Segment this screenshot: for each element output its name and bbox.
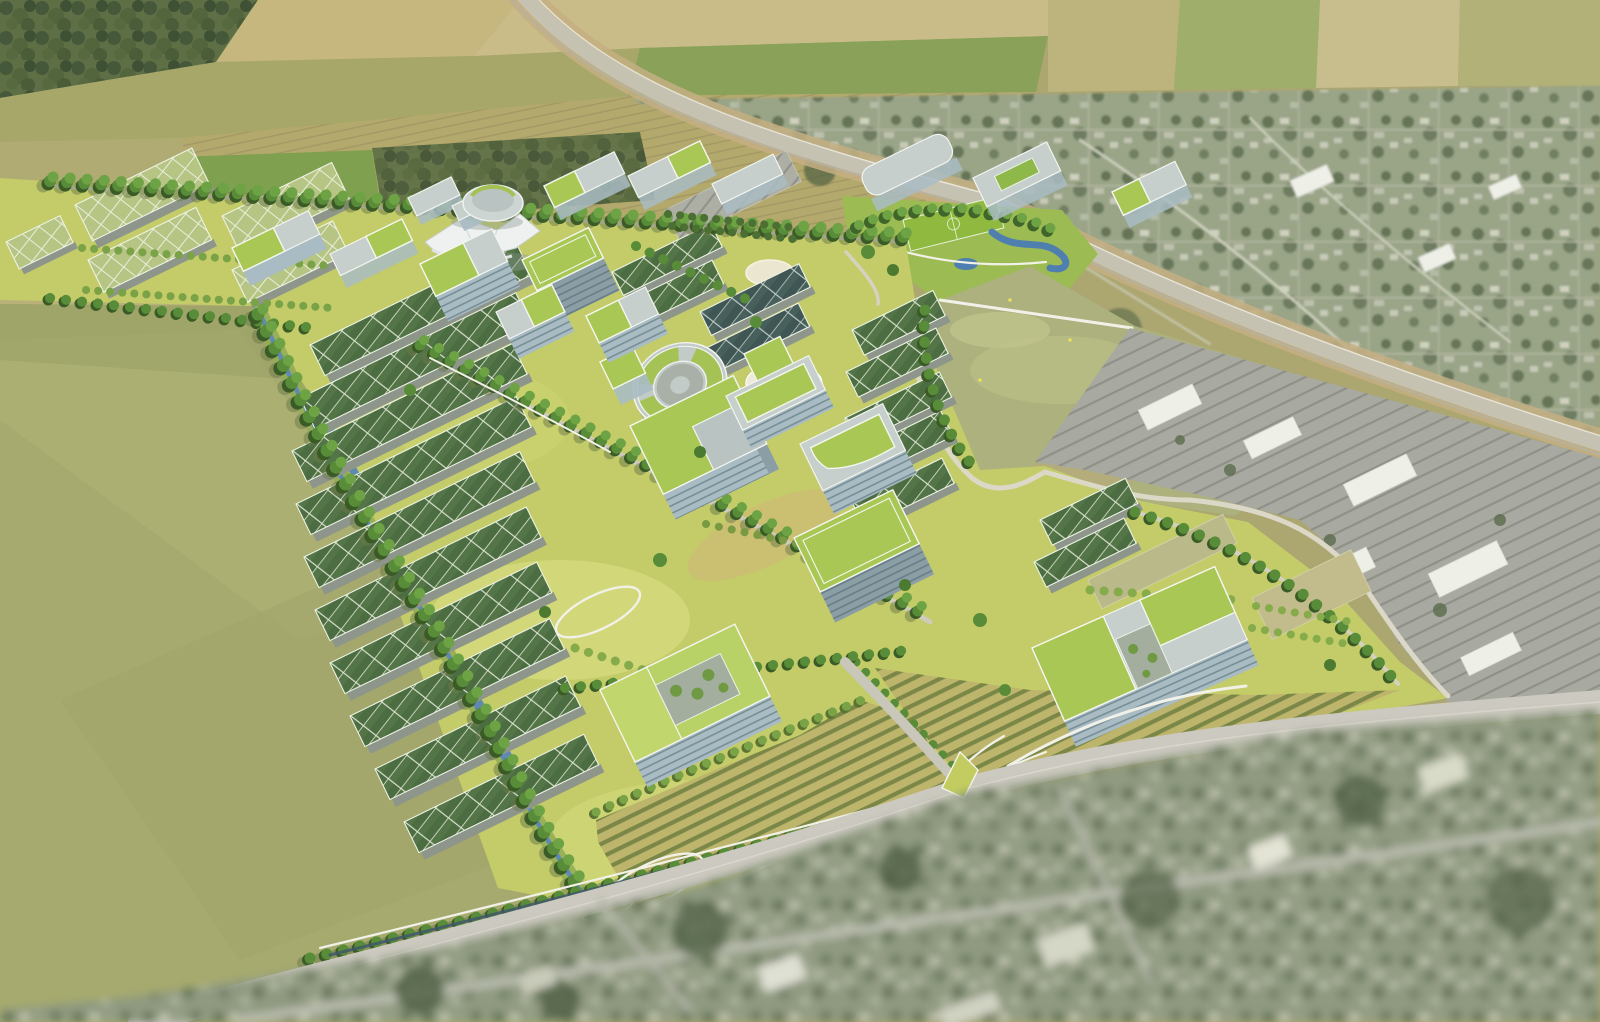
foreground-tree-blob [396,966,444,1014]
aerial-rendering: Bird's-eye rendering of a sustainable re… [0,0,1600,1022]
parking-tree [1175,435,1185,445]
field-far-3 [1316,0,1460,88]
field-far-4 [1458,0,1600,86]
foreground-tree-blob [672,902,728,958]
parking-tree [1494,514,1506,526]
parking-tree [1433,603,1447,617]
field-tan [216,0,520,62]
parking-tree [1224,464,1236,476]
field-far-1 [1048,0,1180,92]
foreground-tree-blob [878,848,922,892]
foreground-tree-blob [1334,774,1386,826]
foreground-tree-blob [1486,866,1554,934]
field-far-2 [1174,0,1320,90]
rendering-canvas [0,0,1600,1022]
foreground-tree-blob [1120,870,1180,930]
meadow-patch [950,312,1050,348]
